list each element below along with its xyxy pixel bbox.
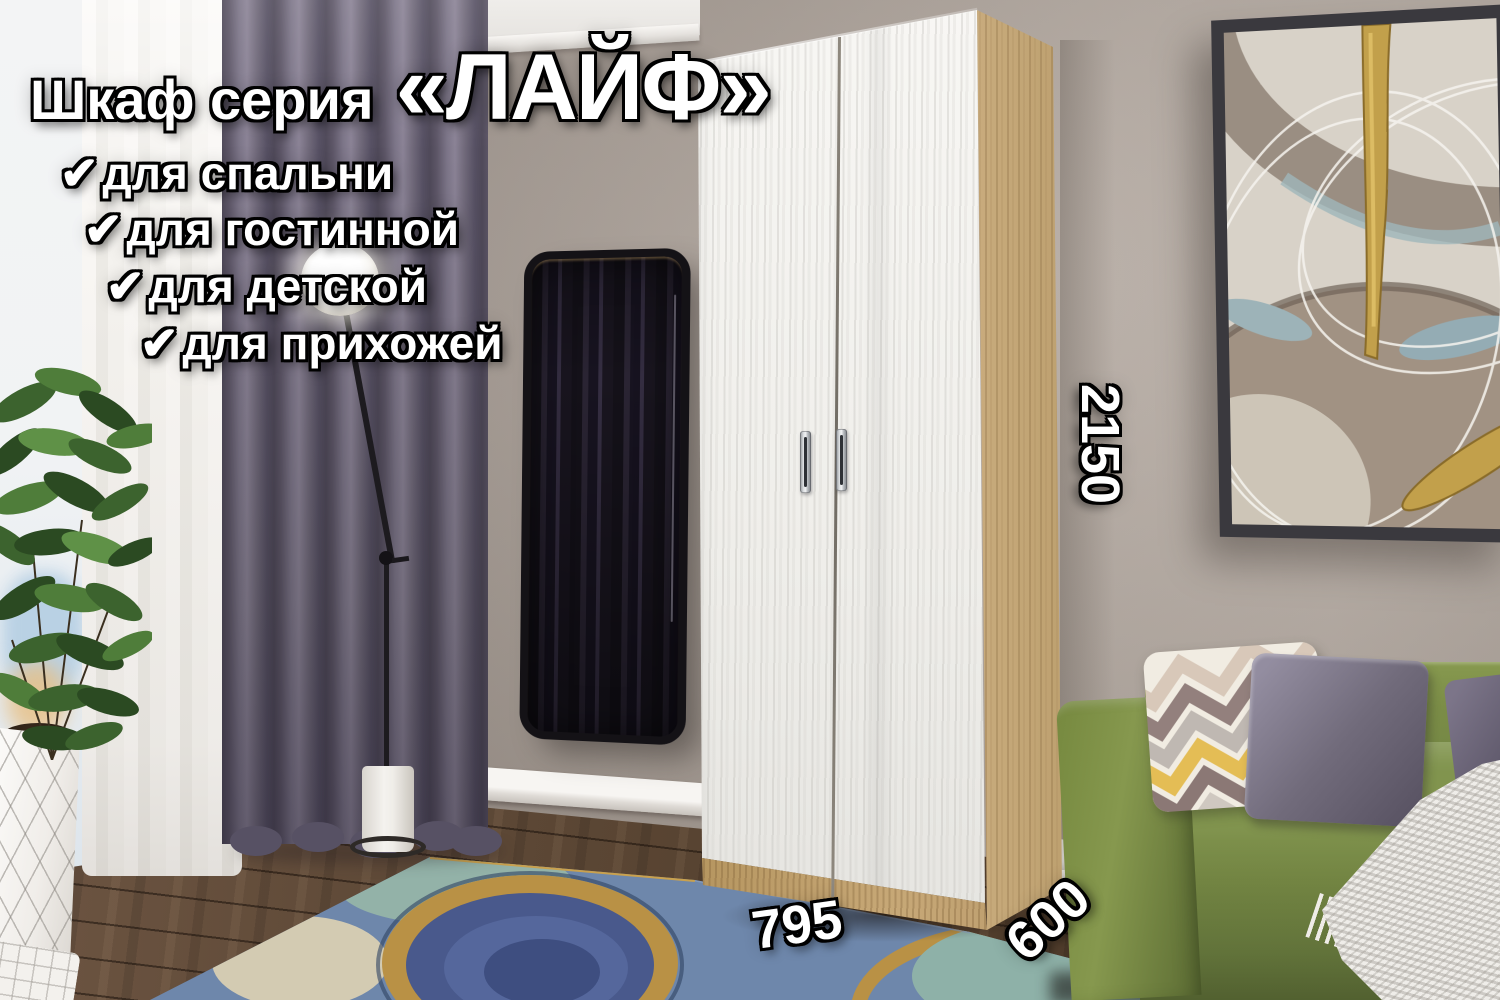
lamp-pole xyxy=(384,556,389,778)
check-icon: ✔ xyxy=(60,150,99,196)
checklist-label: для прихожей xyxy=(183,320,503,366)
wardrobe xyxy=(688,4,1068,936)
checklist-item-kidsroom: ✔ для детской xyxy=(106,263,427,309)
checklist-item-livingroom: ✔ для гостинной xyxy=(84,206,459,252)
dimension-height-label: 2150 xyxy=(1071,379,1129,509)
curtain-fold xyxy=(292,822,344,852)
title-series-name: «ЛАЙФ» xyxy=(396,40,770,134)
product-photo-stage: Шкаф серия «ЛАЙФ» ✔ для спальни ✔ для го… xyxy=(0,0,1500,1000)
plant-leaves xyxy=(0,340,152,760)
wall-art-frame xyxy=(1211,4,1500,543)
plant-pot xyxy=(0,728,80,954)
curtain-fold xyxy=(230,826,282,856)
door-handle-left xyxy=(800,431,811,493)
door-handle-right xyxy=(836,429,847,491)
check-icon: ✔ xyxy=(84,206,123,252)
leaning-mirror xyxy=(519,248,690,746)
wall-art-canvas xyxy=(1224,18,1500,529)
page-title: Шкаф серия «ЛАЙФ» xyxy=(30,40,770,134)
dimension-width-label: 795 xyxy=(749,892,846,958)
checklist-label: для детской xyxy=(149,263,428,309)
checklist-label: для гостинной xyxy=(127,206,459,252)
checklist-item-bedroom: ✔ для спальни xyxy=(60,150,393,196)
lamp-base-ring xyxy=(350,836,426,858)
curtain-fold xyxy=(450,826,502,856)
title-prefix: Шкаф серия xyxy=(30,72,374,128)
check-icon: ✔ xyxy=(140,320,179,366)
check-icon: ✔ xyxy=(106,263,145,309)
checklist-item-hallway: ✔ для прихожей xyxy=(140,320,503,366)
gray-pillow xyxy=(1244,652,1429,827)
mirror-reflection-highlight xyxy=(671,295,676,622)
checklist-label: для спальни xyxy=(103,150,394,196)
